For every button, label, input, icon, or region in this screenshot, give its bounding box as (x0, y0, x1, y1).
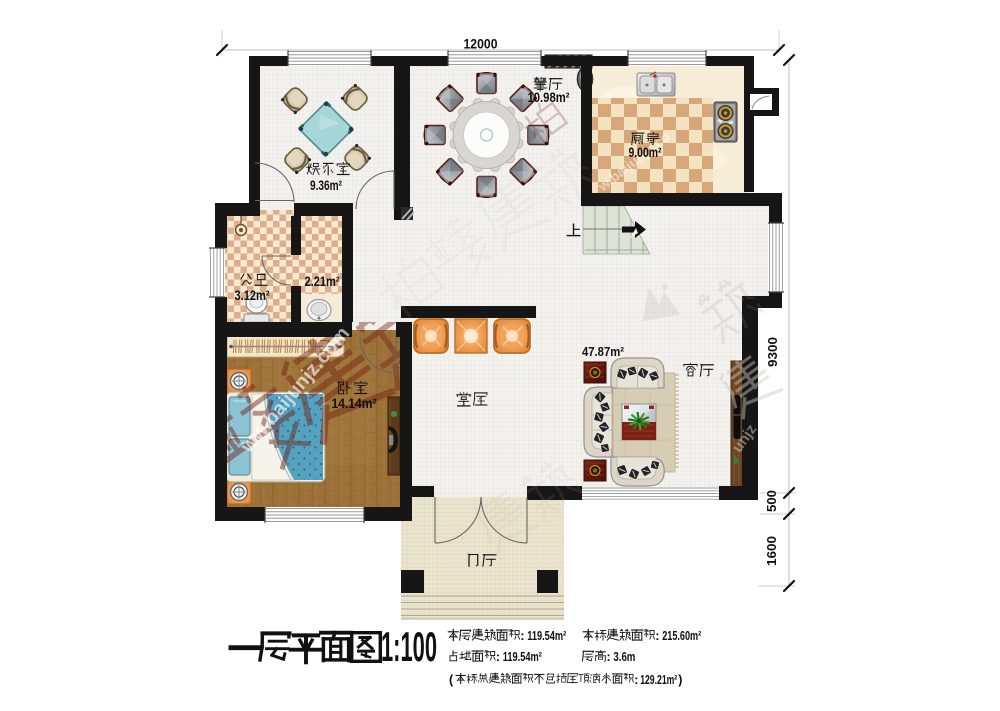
svg-text::: : (655, 628, 659, 643)
svg-text:9.00m²: 9.00m² (629, 145, 662, 160)
svg-text:47.87m²: 47.87m² (582, 344, 625, 359)
svg-text:119.54m²: 119.54m² (503, 649, 542, 664)
svg-text:1600: 1600 (764, 536, 779, 566)
svg-text:3.6m: 3.6m (613, 649, 635, 664)
svg-text:10.98m²: 10.98m² (528, 90, 570, 105)
svg-text:): ) (678, 673, 682, 687)
svg-text:215.60m²: 215.60m² (662, 628, 701, 643)
svg-text::: : (520, 628, 524, 643)
svg-text:9.36m²: 9.36m² (310, 178, 342, 193)
svg-text:1:100: 1:100 (381, 623, 437, 670)
svg-text:119.54m²: 119.54m² (527, 628, 566, 643)
svg-text:500: 500 (764, 490, 779, 512)
svg-text:129.21m²: 129.21m² (640, 673, 677, 687)
svg-text:2.21m²: 2.21m² (305, 274, 340, 289)
svg-text::: : (496, 649, 500, 664)
svg-text::: : (606, 649, 610, 664)
svg-text:9300: 9300 (765, 337, 780, 367)
svg-text:12000: 12000 (464, 37, 498, 52)
svg-text::: : (634, 673, 638, 687)
svg-text:14.14m²: 14.14m² (332, 396, 377, 411)
svg-text:3.12m²: 3.12m² (235, 288, 270, 303)
